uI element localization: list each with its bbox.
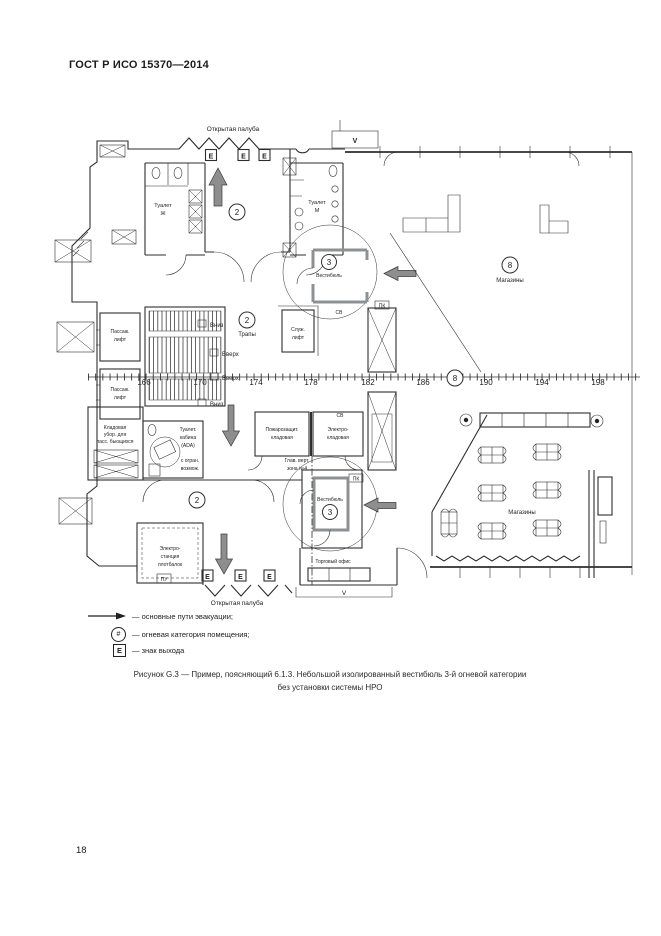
- rack-box: [94, 465, 138, 478]
- evacuation-arrow-symbol: [88, 611, 126, 621]
- room-label: Электро-: [328, 427, 349, 433]
- counter: [308, 568, 370, 581]
- fire-category-icon: #: [111, 627, 126, 642]
- toilet-fixture: [148, 425, 156, 436]
- trunk-cross: [368, 308, 396, 372]
- mvz-label: зона №4: [287, 466, 307, 472]
- fixture: [332, 186, 338, 192]
- fire-category-number: 2: [195, 496, 200, 505]
- column-dot: [595, 419, 599, 423]
- legend-evacuation-text: — основные пути эвакуации;: [132, 612, 233, 621]
- display-table: [533, 520, 561, 536]
- floor-plan-figure: Открытая палуба E E E V: [40, 110, 652, 615]
- trunk-inner: [372, 414, 392, 462]
- room-label: станция: [161, 554, 180, 560]
- vestibule-top: 3 Вестибюль СВ ПК: [283, 225, 416, 319]
- locker-box: [189, 205, 202, 218]
- exit-sign-icon: E: [113, 644, 126, 657]
- toilet-fixture: [329, 166, 337, 177]
- stair-enclosure: [145, 307, 225, 406]
- column-dot: [464, 418, 468, 422]
- lift-label: лифт: [114, 395, 127, 401]
- legend-evacuation-row: — основные пути эвакуации;: [88, 611, 233, 621]
- fire-category-number: 2: [235, 208, 240, 217]
- room-label: кладовая: [327, 435, 349, 441]
- exit-sign: E: [205, 574, 210, 581]
- walls: [255, 412, 309, 456]
- locker-box: [189, 220, 202, 233]
- toilet-fixture: [174, 168, 182, 179]
- door-arcs: [384, 152, 579, 166]
- sink: [295, 222, 303, 230]
- wall-ticks: [460, 567, 580, 578]
- room-label: (ADA): [181, 443, 195, 449]
- room-label: Туалет.: [180, 427, 197, 433]
- room-power-station: Электро- станция плотбалок ПУ: [137, 523, 203, 583]
- door-arcs: [214, 252, 281, 282]
- frame-number: 198: [591, 378, 605, 387]
- shelf-dividers: [502, 413, 568, 427]
- hull-left: [55, 141, 153, 572]
- room-ada-toilet: Туалет. кабина (ADA) с огран. возмож.: [143, 421, 203, 478]
- door-arcs: [143, 480, 274, 502]
- figure-caption-line2: без установки системы НРО: [30, 681, 630, 694]
- room-label: Пожарозащит.: [265, 427, 298, 433]
- fire-category-number: 3: [328, 508, 333, 517]
- exit-sign: E: [241, 154, 246, 161]
- cabinet: [600, 521, 606, 543]
- shop-counter: [403, 195, 460, 232]
- v-label: V: [353, 138, 358, 145]
- lift-label: Пассаж.: [111, 329, 130, 335]
- vent-label: СВ: [336, 310, 344, 316]
- exit-sign: E: [209, 154, 214, 161]
- document-header: ГОСТ Р ИСО 15370—2014: [69, 59, 209, 71]
- legend-category-row: # — огневая категория помещения;: [88, 627, 250, 642]
- figure-caption-line1: Рисунок G.3 — Пример, поясняющий 6.1.3. …: [30, 668, 630, 681]
- evacuation-arrow-up: [209, 168, 227, 206]
- door-arc: [297, 268, 313, 284]
- room-label: Туалет: [154, 203, 172, 209]
- mvz-label: Глав. верт.: [285, 458, 310, 464]
- evacuation-arrow-down: [223, 405, 240, 446]
- lift-label: лифт: [114, 337, 127, 343]
- balcony-box: [57, 322, 94, 352]
- inner-liner: [142, 528, 198, 578]
- display-table: [533, 482, 561, 498]
- lift-label: Служ.: [291, 327, 305, 333]
- hydrant-label: ПК: [379, 304, 386, 310]
- hull-outline: [72, 141, 153, 572]
- clearance-circle: [283, 225, 377, 319]
- frame-number: 186: [416, 378, 430, 387]
- stair-direction: Вниз: [210, 402, 224, 408]
- open-deck-top: Открытая палуба: [153, 125, 345, 153]
- evacuation-arrow-left: [384, 267, 416, 281]
- exit-sign: E: [238, 574, 243, 581]
- open-deck-bottom-label: Открытая палуба: [211, 599, 264, 607]
- display-table: [478, 485, 506, 501]
- lift-label: лифт: [292, 335, 305, 341]
- evacuation-arrow-down: [216, 534, 233, 574]
- deck-notch: [296, 149, 345, 153]
- lift-label: Пассаж.: [111, 387, 130, 393]
- panel-label: ПУ: [161, 577, 169, 583]
- room-label: Магазины: [496, 278, 523, 284]
- page-number: 18: [76, 845, 87, 856]
- fixture: [332, 201, 338, 207]
- room-label: с огран.: [181, 458, 199, 464]
- scalloped-edge: [436, 556, 580, 561]
- room-label: пасс. бьющихся: [96, 439, 133, 445]
- room-sales-office: Торговый офис V: [296, 548, 427, 597]
- direction-marker: [198, 320, 206, 327]
- exit-sign: E: [262, 154, 267, 161]
- room-label: Туалет: [308, 200, 326, 206]
- shelf-row: [480, 413, 590, 427]
- counter-dividers: [329, 568, 350, 581]
- vent-label: СВ: [337, 413, 345, 419]
- room-label: плотбалок: [158, 562, 183, 568]
- room-label: убор. для: [104, 432, 127, 438]
- display-table: [533, 444, 561, 460]
- stairs-block: Вниз Вверх Вверх Вниз 2 Трапы: [145, 307, 256, 408]
- door-arc: [345, 456, 359, 470]
- walls: [203, 560, 300, 585]
- locker-box: [189, 190, 202, 203]
- room-label: Вестибюль: [317, 497, 343, 503]
- v-label: V: [342, 590, 347, 597]
- legend-category-text: — огневая категория помещения;: [132, 630, 250, 639]
- display-table: [441, 509, 457, 537]
- room-cat2-top: 2: [205, 149, 290, 282]
- figure-caption: Рисунок G.3 — Пример, поясняющий 6.1.3. …: [30, 668, 630, 694]
- sink: [295, 208, 303, 216]
- fire-category-number: 2: [245, 316, 250, 325]
- frame-number: 178: [304, 378, 318, 387]
- diagonal-wall: [390, 233, 481, 372]
- passenger-lifts: Пассаж. лифт Пассаж. лифт: [96, 313, 140, 419]
- vestibule-walls: [314, 478, 348, 530]
- room-label: Торговый офис: [315, 558, 351, 565]
- door-arc: [248, 456, 262, 470]
- deck-zigzag: [179, 138, 296, 149]
- service-lift: Служ. лифт: [278, 306, 318, 356]
- stair-direction: Вверх: [222, 352, 239, 358]
- stair-direction: Вверх: [222, 376, 239, 382]
- display-table: [478, 447, 506, 463]
- stairs-label: Трапы: [238, 332, 256, 338]
- balcony-box: [100, 145, 125, 157]
- room-label: Электро-: [160, 546, 181, 552]
- room-label: кабина: [180, 435, 196, 441]
- room-cat2-bottom: 2: [143, 480, 302, 508]
- room-store-left: Кладовая убор. для пасс. бьющихся: [88, 407, 143, 480]
- door-arc: [397, 548, 427, 578]
- shop-counter: [540, 205, 568, 233]
- room-label: Вестибюль: [316, 273, 342, 279]
- balcony-box: [112, 230, 136, 244]
- legend-exit-row: E — знак выхода: [88, 644, 184, 657]
- open-deck-top-label: Открытая палуба: [207, 125, 260, 133]
- fixture: [332, 216, 338, 222]
- rack-box: [94, 450, 138, 463]
- hydrant-label: ПК: [353, 477, 360, 483]
- room-label: М: [315, 208, 320, 214]
- frame-number: 194: [535, 378, 549, 387]
- room-label: кладовая: [271, 435, 293, 441]
- document-page: { "page": { "header": "ГОСТ Р ИСО 15370—…: [0, 0, 661, 936]
- display-table: [478, 523, 506, 539]
- frame-number: 174: [249, 378, 263, 387]
- evacuation-arrow-left: [364, 498, 396, 512]
- fire-category-number: 3: [327, 258, 332, 267]
- shops-bottom: Магазины: [430, 413, 632, 578]
- room-label: Кладовая: [104, 425, 127, 431]
- double-wall: [589, 470, 594, 578]
- category-symbol-wrap: #: [88, 627, 126, 642]
- stair-direction: Вниз: [210, 323, 224, 329]
- lift-shaft: [100, 369, 140, 419]
- exit-symbol-wrap: E: [88, 644, 126, 657]
- toilet-fixture: [152, 168, 160, 179]
- open-deck-bottom: E E E Открытая палуба: [202, 534, 300, 607]
- room-label: Ж: [160, 211, 165, 217]
- exit-signs-top: E E E: [206, 150, 271, 161]
- sink: [149, 464, 160, 476]
- stalls-door: [145, 163, 188, 275]
- shops-top: 8 Магазины: [390, 195, 568, 372]
- diagonal-wall: [432, 415, 487, 512]
- frame-number: 190: [479, 378, 493, 387]
- walls: [300, 548, 397, 585]
- arrow-icon: [88, 611, 126, 621]
- cabinet: [598, 477, 612, 515]
- room-label: Магазины: [508, 510, 535, 516]
- stair-flight: [149, 379, 221, 400]
- exit-sign: E: [267, 574, 272, 581]
- room-label: возмож.: [181, 466, 200, 472]
- frame-number: 182: [361, 378, 375, 387]
- room-toilet-w: Туалет Ж: [145, 163, 205, 275]
- balcony-box: [55, 240, 91, 262]
- fire-category-number: 8: [453, 374, 458, 383]
- deck-zigzag: [205, 585, 292, 596]
- legend-exit-text: — знак выхода: [132, 646, 184, 655]
- room-electro-store: Электро- кладовая: [313, 412, 363, 470]
- fire-category-number: 8: [508, 261, 513, 270]
- wheelchair-symbol: [154, 440, 176, 459]
